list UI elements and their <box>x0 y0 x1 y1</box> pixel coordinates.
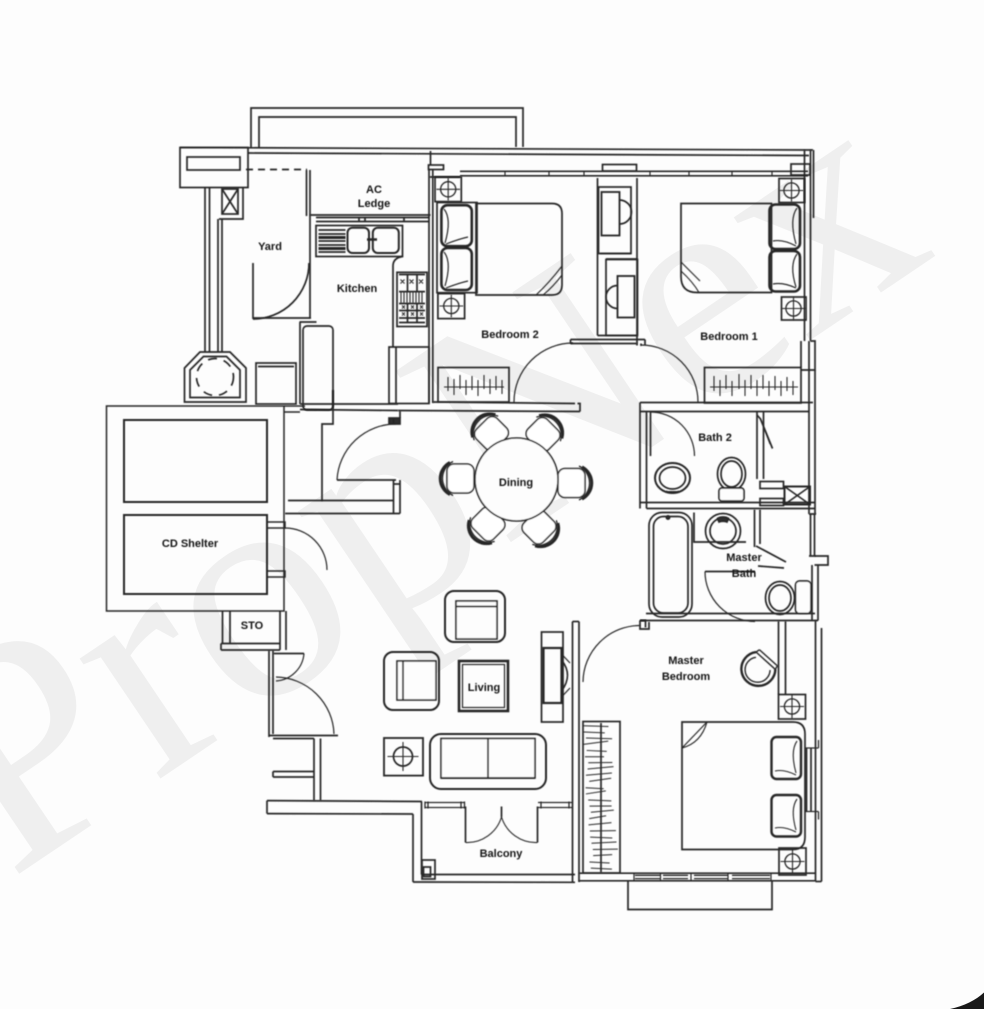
svg-text:Ledge: Ledge <box>358 198 390 210</box>
svg-text:Living: Living <box>468 682 500 694</box>
svg-text:Bath: Bath <box>732 568 757 580</box>
svg-text:Bedroom 1: Bedroom 1 <box>700 331 757 343</box>
svg-text:STO: STO <box>241 620 264 632</box>
svg-text:Yard: Yard <box>258 241 282 253</box>
svg-text:CD Shelter: CD Shelter <box>162 538 219 550</box>
svg-text:Balcony: Balcony <box>480 848 524 860</box>
svg-text:Dining: Dining <box>499 477 533 489</box>
svg-text:Bedroom 2: Bedroom 2 <box>481 329 538 341</box>
svg-text:Master: Master <box>726 552 762 564</box>
svg-text:Master: Master <box>668 655 704 667</box>
svg-text:Bath 2: Bath 2 <box>698 432 732 444</box>
svg-text:Bedroom: Bedroom <box>662 671 711 683</box>
svg-text:AC: AC <box>366 184 382 196</box>
svg-text:Kitchen: Kitchen <box>337 283 378 295</box>
